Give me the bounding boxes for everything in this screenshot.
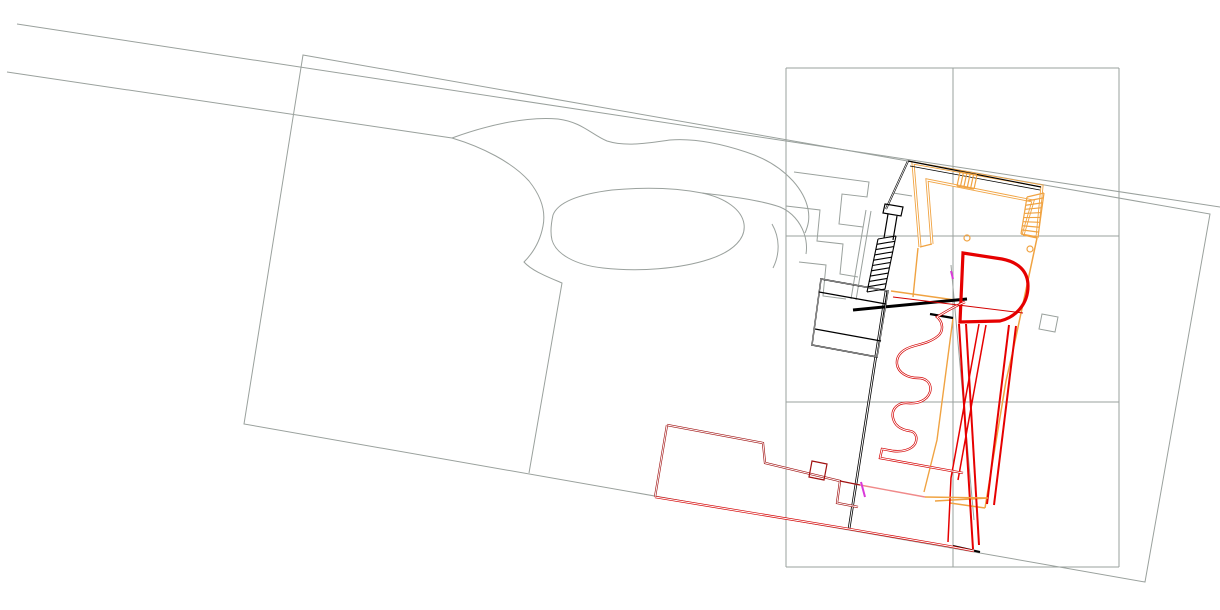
roof-inner-edge — [927, 180, 1033, 244]
markers — [964, 235, 1033, 252]
lower-building-west-inner — [655, 425, 667, 497]
black-staircase-tread — [874, 257, 892, 260]
site-plan-canvas — [0, 0, 1220, 610]
lower-building-notch — [809, 461, 827, 480]
roof-line-over-wall — [891, 291, 955, 300]
black-staircase-tread — [873, 263, 891, 266]
black-staircase-tread — [871, 268, 889, 271]
orange-edge-continue — [925, 497, 988, 498]
black-staircase-tread — [876, 247, 894, 250]
terrace-step-2 — [786, 206, 858, 277]
west-wing-divider-2 — [815, 329, 881, 341]
orange-right-stair-tread — [1023, 222, 1040, 223]
property-boundary — [244, 55, 1210, 582]
orange-top-stair-tread — [964, 173, 967, 187]
black-staircase-tread — [877, 241, 895, 244]
roof-corner-south-a — [950, 503, 985, 508]
pink-edge — [860, 485, 925, 497]
black-staircase-tread — [869, 278, 887, 281]
black-staircase-tread — [868, 284, 886, 287]
orange-top-stair-tread — [957, 172, 960, 186]
pond-outline — [551, 188, 744, 269]
orange-top-stair-tread — [960, 173, 963, 187]
lower-building-top-inner — [667, 425, 858, 507]
black-west-edge-inner — [886, 161, 908, 209]
orange-top-stair-tread — [967, 174, 970, 188]
small-pad-square — [1039, 314, 1058, 332]
orange-top-stair-tread — [971, 174, 974, 188]
orange-marker-circle-2 — [1027, 246, 1033, 252]
black-staircase-tread — [870, 273, 888, 276]
black-building — [812, 161, 1041, 552]
orange-top-stair-tread — [974, 175, 977, 189]
survey-linework — [7, 24, 1220, 582]
terrace-stub — [893, 193, 912, 196]
site-plan-drawing — [0, 0, 1220, 610]
road-edge-south — [7, 72, 562, 473]
upper-flight-a — [884, 214, 888, 238]
entry-column-box — [883, 204, 903, 216]
staircases — [867, 172, 1044, 292]
main-wall-long-inner — [849, 291, 886, 529]
terrace-step-3 — [799, 262, 846, 299]
roof-leg-close-left — [920, 244, 932, 247]
roof-left-leg-extension — [913, 248, 918, 297]
d-shape-pavilion — [960, 253, 1028, 322]
black-staircase-tread — [875, 252, 893, 255]
magenta-door-1 — [861, 482, 865, 497]
driveway-south-edge — [702, 193, 807, 254]
terrace-arc — [772, 224, 778, 268]
lower-building-top — [667, 425, 858, 507]
west-wing-divider-1 — [819, 292, 886, 304]
driveway-north-edge — [452, 118, 809, 233]
road-edge-north — [17, 24, 1220, 207]
